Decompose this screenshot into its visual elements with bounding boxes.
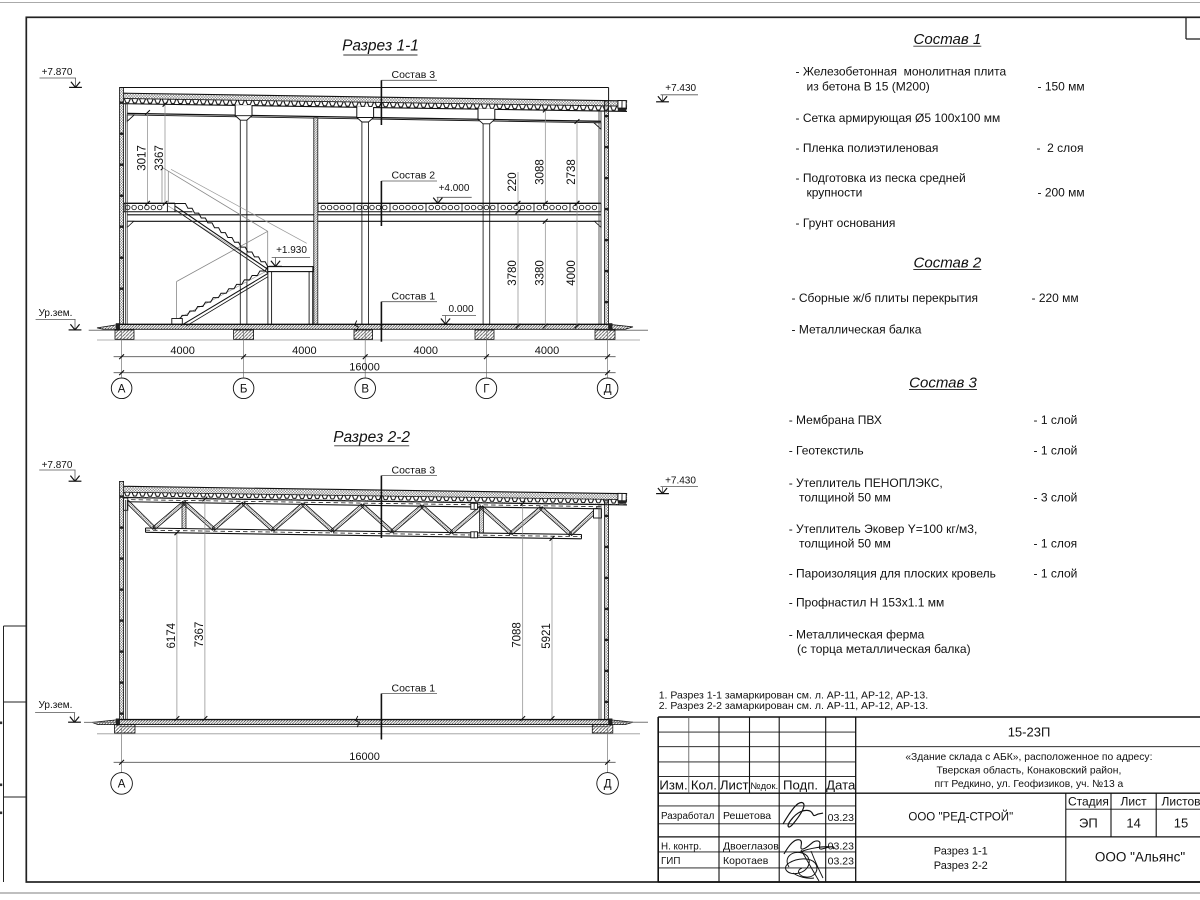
svg-text:- Железобетонная монолитная п: - Железобетонная монолитная плита: [796, 65, 1007, 79]
svg-text:Дата: Дата: [826, 778, 856, 793]
svg-text:Двоеглазов: Двоеглазов: [723, 840, 779, 852]
svg-text:- Сетка армирующая Ø5 100х100: - Сетка армирующая Ø5 100х100 мм: [796, 111, 1001, 125]
svg-text:- Металлическая балка: - Металлическая балка: [792, 323, 922, 337]
svg-text:А: А: [118, 383, 126, 395]
svg-text:Ур.зем.: Ур.зем.: [39, 308, 73, 319]
svg-text:- Мембрана ПВХ: - Мембрана ПВХ: [789, 413, 882, 427]
svg-text:Разрез 1-1: Разрез 1-1: [342, 37, 419, 54]
svg-text:- 1 слой: - 1 слой: [1034, 413, 1078, 427]
svg-text:- Подготовка из песка средней: - Подготовка из песка средней: [796, 171, 966, 185]
svg-text:Подп.: Подп.: [783, 778, 818, 793]
svg-text:- Металлическая ферма: - Металлическая ферма: [789, 628, 925, 642]
svg-text:Кол.: Кол.: [691, 778, 717, 793]
svg-text:Состав 3: Состав 3: [392, 69, 436, 81]
svg-text:+7.870: +7.870: [42, 460, 73, 471]
svg-text:ООО "РЕД-СТРОЙ": ООО "РЕД-СТРОЙ": [908, 811, 1013, 824]
svg-text:Г: Г: [483, 383, 490, 395]
svg-text:толщиной 50 мм: толщиной 50 мм: [799, 537, 891, 551]
svg-text:7088: 7088: [512, 622, 524, 648]
svg-text:Состав 2: Состав 2: [392, 170, 436, 182]
svg-text:15-23П: 15-23П: [1008, 725, 1051, 740]
svg-text:Разработал: Разработал: [661, 811, 715, 822]
svg-text:4000: 4000: [535, 345, 559, 357]
svg-text:+7.870: +7.870: [42, 67, 73, 78]
svg-text:Д: Д: [604, 383, 612, 395]
svg-text:Б: Б: [240, 383, 248, 395]
svg-text:4000: 4000: [414, 345, 438, 357]
svg-text:+7.430: +7.430: [665, 476, 696, 487]
svg-text:- Пароизоляция для плоских кро: - Пароизоляция для плоских кровель: [789, 567, 996, 581]
svg-text:(с торца металлическая балка): (с торца металлическая балка): [797, 642, 971, 656]
svg-text:03.23: 03.23: [828, 856, 854, 868]
svg-text:Состав 3: Состав 3: [909, 374, 977, 391]
svg-text:Состав 3: Состав 3: [392, 464, 436, 476]
svg-text:- Утеплитель ПЕНОПЛЭКС,: - Утеплитель ПЕНОПЛЭКС,: [789, 476, 943, 490]
svg-text:16000: 16000: [349, 361, 380, 373]
svg-text:- 3 слой: - 3 слой: [1034, 491, 1078, 505]
svg-text:3367: 3367: [154, 145, 166, 171]
svg-text:Состав 2: Состав 2: [914, 254, 982, 271]
svg-text:Лист: Лист: [720, 778, 749, 793]
svg-text:Коротаев: Коротаев: [723, 855, 769, 867]
svg-text:- 2 слоя: - 2 слоя: [1037, 141, 1084, 155]
svg-text:- Утеплитель Эковер Y=100 кг/м: - Утеплитель Эковер Y=100 кг/м3,: [789, 522, 978, 536]
svg-text:+7.430: +7.430: [665, 83, 696, 94]
svg-text:2738: 2738: [566, 159, 578, 185]
svg-text:16000: 16000: [349, 751, 380, 763]
svg-text:ЭП: ЭП: [1079, 816, 1098, 831]
svg-text:Ур.зем.: Ур.зем.: [39, 700, 73, 711]
svg-text:3380: 3380: [534, 260, 546, 286]
svg-text:№док.: №док.: [750, 781, 778, 792]
svg-text:крупности: крупности: [807, 186, 863, 200]
svg-text:Разрез 2-2: Разрез 2-2: [333, 429, 410, 446]
svg-text:4000: 4000: [292, 345, 316, 357]
svg-text:15: 15: [1174, 816, 1188, 831]
svg-text:ГИП: ГИП: [661, 856, 680, 867]
svg-text:4000: 4000: [566, 260, 578, 286]
svg-text:- Профнастил Н 153х1.1 мм: - Профнастил Н 153х1.1 мм: [789, 596, 945, 610]
svg-text:толщиной 50 мм: толщиной 50 мм: [799, 491, 891, 505]
svg-text:Разрез 1-1: Разрез 1-1: [934, 845, 988, 857]
svg-text:+1.930: +1.930: [276, 245, 307, 256]
svg-text:- Пленка полиэтиленовая: - Пленка полиэтиленовая: [796, 141, 939, 155]
svg-text:- Сборные ж/б плиты перекрытия: - Сборные ж/б плиты перекрытия: [792, 291, 978, 305]
svg-text:6174: 6174: [166, 622, 178, 648]
svg-text:«Здание склада с АБК», располо: «Здание склада с АБК», расположенное по …: [905, 752, 1152, 763]
svg-text:ООО "Альянс": ООО "Альянс": [1095, 850, 1185, 865]
svg-text:14: 14: [1126, 816, 1140, 831]
svg-text:- 1 слой: - 1 слой: [1034, 567, 1078, 581]
svg-text:Состав 1: Состав 1: [392, 290, 436, 302]
svg-text:2. Разрез 2-2 замаркирован см.: 2. Разрез 2-2 замаркирован см. л. АР-11,…: [659, 700, 928, 712]
svg-text:3017: 3017: [137, 145, 149, 171]
svg-text:Стадия: Стадия: [1068, 795, 1109, 809]
svg-text:Лист: Лист: [1121, 795, 1148, 809]
svg-text:- Грунт основания: - Грунт основания: [796, 216, 896, 230]
svg-text:Изм.: Изм.: [659, 778, 687, 793]
svg-text:- 1 слоя: - 1 слоя: [1034, 537, 1078, 551]
svg-text:Состав 1: Состав 1: [392, 682, 436, 694]
svg-text:Тверская область, Конаковский: Тверская область, Конаковский район,: [936, 764, 1121, 776]
svg-text:- 150 мм: - 150 мм: [1038, 80, 1085, 94]
svg-text:Листов: Листов: [1162, 795, 1200, 809]
svg-text:Д: Д: [604, 779, 612, 791]
svg-text:+4.000: +4.000: [439, 183, 470, 194]
svg-text:0.000: 0.000: [448, 304, 473, 315]
svg-text:Решетова: Решетова: [723, 810, 771, 822]
svg-text:Разрез 2-2: Разрез 2-2: [934, 860, 988, 872]
svg-text:5921: 5921: [541, 623, 553, 649]
svg-text:3088: 3088: [534, 159, 546, 185]
svg-text:4000: 4000: [170, 345, 194, 357]
svg-text:- Геотекстиль: - Геотекстиль: [789, 444, 864, 458]
svg-text:Состав 1: Состав 1: [914, 31, 982, 48]
svg-text:- 1 слой: - 1 слой: [1034, 444, 1078, 458]
svg-text:03.23: 03.23: [828, 812, 854, 824]
svg-text:220: 220: [507, 172, 519, 191]
svg-text:- 220 мм: - 220 мм: [1032, 291, 1079, 305]
svg-text:Н. контр.: Н. контр.: [661, 841, 701, 852]
svg-text:пгт Редкино, ул. Геофизиков, у: пгт Редкино, ул. Геофизиков, уч. №13 а: [935, 778, 1124, 790]
svg-text:из бетона В 15 (М200): из бетона В 15 (М200): [807, 80, 930, 94]
svg-text:А: А: [118, 779, 126, 791]
svg-text:7367: 7367: [194, 622, 206, 648]
svg-text:3780: 3780: [507, 260, 519, 286]
svg-text:В: В: [361, 383, 369, 395]
svg-text:- 200 мм: - 200 мм: [1038, 186, 1085, 200]
